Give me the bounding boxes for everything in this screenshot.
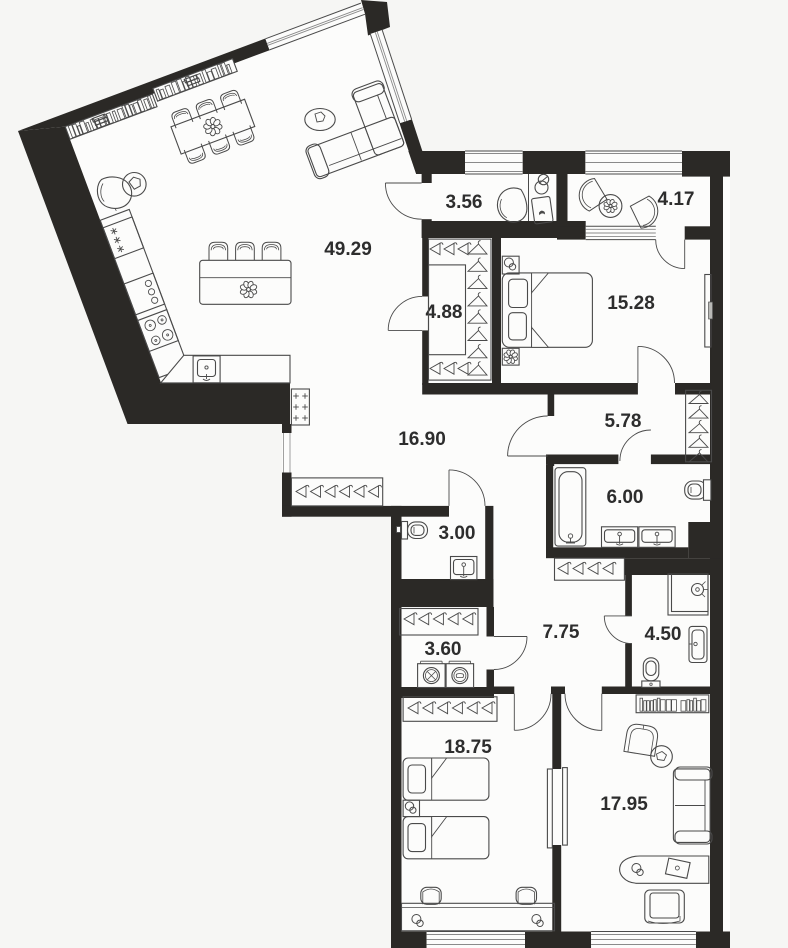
svg-text:17.95: 17.95 — [600, 794, 648, 815]
svg-text:15.28: 15.28 — [607, 293, 655, 314]
svg-text:4.17: 4.17 — [658, 189, 695, 210]
svg-text:18.75: 18.75 — [444, 737, 492, 758]
svg-text:6.00: 6.00 — [607, 487, 644, 508]
svg-text:3.00: 3.00 — [439, 523, 476, 544]
svg-text:3.56: 3.56 — [446, 192, 483, 213]
svg-text:7.75: 7.75 — [543, 622, 580, 643]
svg-text:4.88: 4.88 — [426, 302, 463, 323]
svg-text:49.29: 49.29 — [324, 239, 372, 260]
svg-text:16.90: 16.90 — [398, 429, 446, 450]
svg-text:4.50: 4.50 — [645, 624, 682, 645]
svg-text:3.60: 3.60 — [425, 639, 462, 660]
svg-text:5.78: 5.78 — [605, 411, 642, 432]
